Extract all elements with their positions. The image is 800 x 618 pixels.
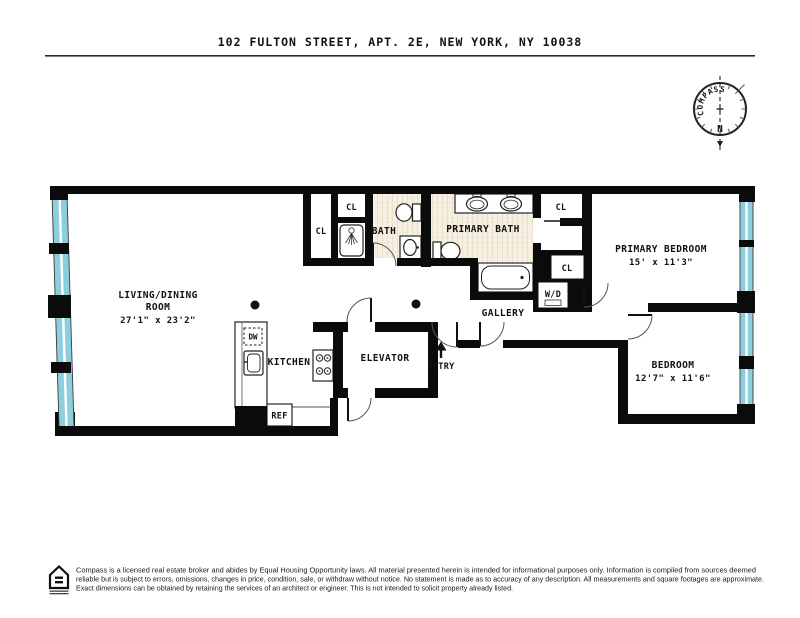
closet-label: CL bbox=[562, 264, 573, 274]
elevator-label: ELEVATOR bbox=[361, 353, 410, 364]
bath-label: BATH bbox=[372, 226, 396, 237]
bathtub-drain bbox=[520, 276, 523, 279]
washer-dryer-label: W/D bbox=[545, 290, 561, 300]
compass-rose: COMPASS N bbox=[694, 76, 746, 150]
bedroom-dims: 12'7" x 11'6" bbox=[635, 374, 711, 384]
floorplan-canvas: 102 FULTON STREET, APT. 2E, NEW YORK, NY… bbox=[0, 0, 800, 618]
page-title: 102 FULTON STREET, APT. 2E, NEW YORK, NY… bbox=[218, 35, 583, 49]
primary-toilet-bowl bbox=[441, 242, 460, 259]
dishwasher-label: DW bbox=[248, 333, 258, 342]
disclaimer-line-3: Exact dimensions can be obtained by reta… bbox=[76, 586, 513, 593]
stove bbox=[313, 350, 333, 381]
bath-sink bbox=[404, 240, 417, 256]
living-room-label-2: ROOM bbox=[146, 302, 170, 313]
primary-toilet-tank bbox=[433, 242, 441, 260]
closet-label: CL bbox=[556, 203, 567, 213]
kitchen-label: KITCHEN bbox=[268, 357, 311, 368]
disclaimer-line-2: reliable but is subject to errors, omiss… bbox=[76, 577, 764, 584]
compass-arrowhead bbox=[717, 141, 723, 147]
compass-north-label: N bbox=[717, 124, 723, 135]
closet-label: CL bbox=[346, 203, 357, 213]
bath-toilet-bowl bbox=[396, 204, 412, 221]
primary-bedroom-dims: 15' x 11'3" bbox=[629, 258, 693, 268]
washer-dryer-door bbox=[545, 300, 561, 306]
column-dot bbox=[412, 300, 421, 309]
floorplan-page: 102 FULTON STREET, APT. 2E, NEW YORK, NY… bbox=[0, 0, 800, 618]
footer: Compass is a licensed real estate broker… bbox=[50, 567, 765, 595]
living-room-dims: 27'1" x 23'2" bbox=[120, 316, 196, 326]
living-room-label-1: LIVING/DINING bbox=[118, 290, 198, 301]
bath-faucet bbox=[417, 246, 419, 248]
closet-label: CL bbox=[316, 227, 327, 237]
entry-label: ENTRY bbox=[427, 362, 455, 372]
primary-bedroom-label: PRIMARY BEDROOM bbox=[615, 244, 707, 255]
bath-toilet-tank bbox=[413, 204, 422, 221]
refrigerator-label: REF bbox=[271, 412, 287, 422]
primary-bath-label: PRIMARY BATH bbox=[446, 224, 519, 235]
disclaimer-line-1: Compass is a licensed real estate broker… bbox=[76, 568, 756, 575]
title-divider bbox=[45, 55, 755, 57]
equal-housing-icon bbox=[50, 567, 69, 595]
column-dot bbox=[251, 301, 260, 310]
gallery-label: GALLERY bbox=[482, 308, 525, 319]
kitchen-sink-basin bbox=[248, 354, 261, 372]
bedroom-label: BEDROOM bbox=[652, 360, 695, 371]
